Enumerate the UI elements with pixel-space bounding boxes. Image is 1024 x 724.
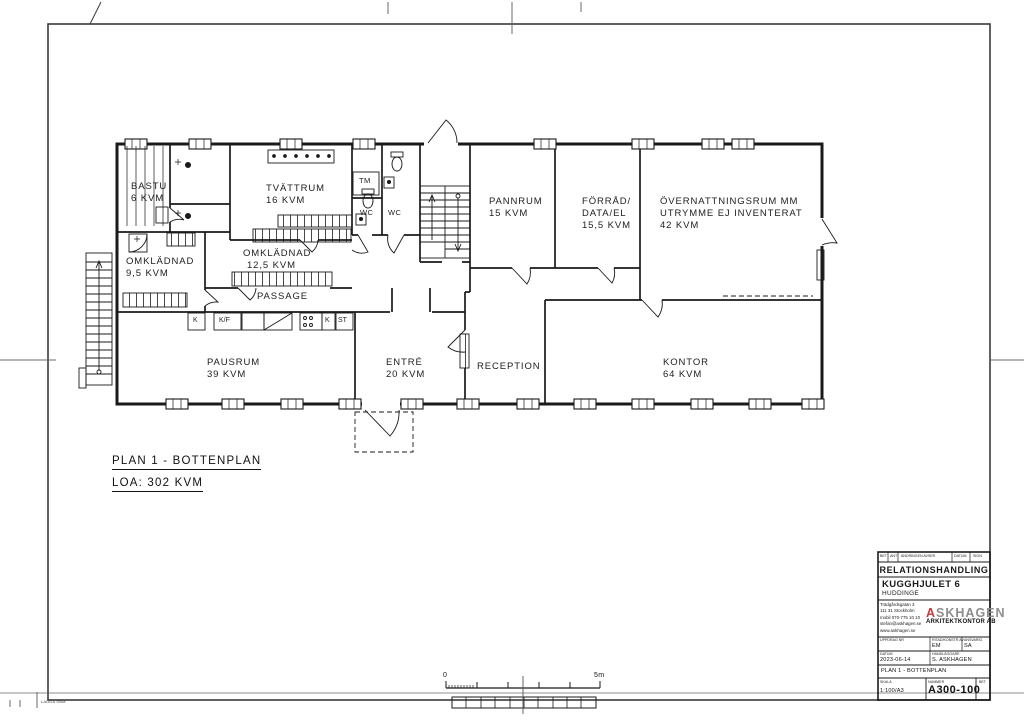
tb-header-datum: DATUM [954,554,967,558]
tb-header-change: ÄNDRINGEN AVSER [901,554,935,558]
tb-ansvarig-label: ANSVARIG [964,638,982,642]
tb-skala-label: SKALA [880,680,892,684]
room-label-pannrum: PANNRUM15 KVM [489,196,543,220]
tb-header-ant: ANT [890,554,897,558]
room-label-omkladnad-95: OMKLÄDNAD9,5 KVM [126,256,194,280]
tb-skala-value: 1:100/A3 [880,688,904,694]
tb-bet-label: BET [979,680,986,684]
scale-start: 0 [443,672,447,679]
room-label-entre: ENTRÉ20 KVM [386,357,425,381]
label-kitchen-k1: K [193,317,198,325]
label-wc-right: WC [388,209,401,217]
tb-ritad-value: EM [932,643,941,649]
tb-datum-value: 2023-06-14 [880,657,911,663]
room-label-pausrum: PAUSRUM39 KVM [207,357,260,381]
room-label-forrad: FÖRRÅD/DATA/EL15,5 KVM [582,196,631,232]
room-label-bastu: BASTU6 KVM [131,181,167,205]
label-kitchen-k2: K [325,317,330,325]
plan-area: LOA: 302 KVM [112,477,203,492]
room-label-tvattrum: TVÄTTRUM16 KVM [266,183,325,207]
tb-uppdrag-label: UPPDRAG NR [880,638,904,642]
room-label-passage: PASSAGE [257,291,308,303]
scale-end: 5m [594,672,604,679]
tb-project: KUGGHJULET 6 [882,579,960,590]
tb-content: PLAN 1 - BOTTENPLAN [881,668,946,674]
tb-datum-label: DATUM [880,652,893,656]
label-tm: TM [359,177,371,185]
tb-ansvarig-value: SA [964,643,972,649]
drawing-sheet: { "sheet": { "plan_title": "PLAN 1 - BOT… [0,0,1024,724]
fold-marks [0,2,1024,708]
plot-stamp: LADDA SBM [41,699,66,704]
label-kitchen-kf: K/F [219,317,230,325]
tb-handl-label: HANDLÄGGARE [932,652,960,656]
room-label-overnattningsrum: ÖVERNATTNINGSRUM MMUTRYMME EJ INVENTERAT… [660,196,803,232]
tb-address: Trädgårdsgatan 3 111 31 Stockholm mobil … [880,602,921,634]
plan-title: PLAN 1 - BOTTENPLAN [112,455,261,470]
label-wc-left: WC [360,209,373,217]
tb-handl-value: S. ASKHAGEN [932,657,972,663]
fixtures [123,146,824,368]
tb-nummer-value: A300-100 [928,684,980,696]
tb-municipality: HUDDINGE [882,590,919,597]
label-kitchen-st: ST [338,317,347,325]
askhagen-logo: ASKHAGEN [926,606,1006,620]
room-label-omkladnad-125: OMKLÄDNAD12,5 KVM [243,248,311,272]
room-label-reception: RECEPTION [477,361,541,373]
sheet-border [48,2,990,700]
scale-bar [446,676,600,714]
tb-header-bet: BET [880,554,887,558]
tb-header-sign: SIGN [973,554,982,558]
askhagen-logo-sub: ARKITEKTKONTOR AB [926,619,996,625]
room-label-kontor: KONTOR64 KVM [663,357,709,381]
tb-ritad-label: RITAD/KONSTR AV [932,638,964,642]
tb-status: RELATIONSHANDLING [878,565,990,575]
